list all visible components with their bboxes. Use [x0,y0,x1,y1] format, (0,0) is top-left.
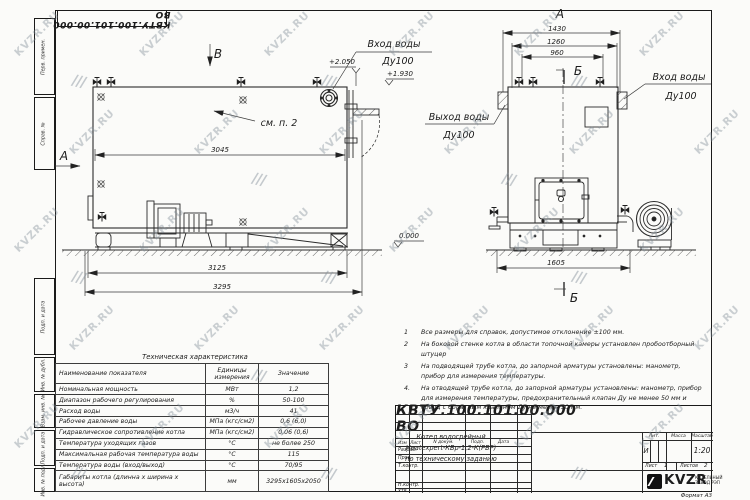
grid-line [396,422,531,423]
left-view [62,78,382,257]
grid-line [642,440,713,441]
spec-units: °С [206,460,259,471]
note-1: 1Все размеры для справок, допустимое отк… [404,328,706,337]
view-label-b: В [214,47,222,61]
spec-header-name: Наименование показателя [56,364,206,384]
spec-units: °С [206,438,259,449]
section-label-b-top: Б [574,64,582,78]
format-label: Формат А3 [614,493,712,499]
note-number: 3 [404,362,421,381]
mass-label: Масса [666,434,691,439]
col-podp: Подп. [465,440,490,445]
spec-name: Номинальная мощность [56,384,206,395]
row-utv: Утв. [398,489,408,494]
scale-value: 1:20 [691,446,713,455]
spec-units: мм [206,471,259,492]
note-text: На подводящей трубе котла, до запорной а… [421,362,706,381]
grid-line [396,454,531,455]
spec-name: Расход воды [56,406,206,417]
note-text: Все размеры для справок, допустимое откл… [421,328,624,337]
dim-1430: 1430 [548,25,566,33]
outlet-label: Выход воды [429,112,490,123]
lit-value: И [642,447,650,455]
spec-value: 0,06 (0,6) [259,427,329,438]
spec-units: МВт [206,384,259,395]
grid-line [396,470,531,471]
section-label-b-bottom: Б [570,291,578,305]
section-label-a: А [59,149,68,163]
spec-row: Гидравлическое сопротивление котлаМПа (к… [56,427,329,438]
grid-line [650,440,651,462]
grid-line [465,406,466,493]
right-view-dimensions [394,30,711,296]
see-note-label: см. п. 2 [261,118,298,129]
spec-row: Рабочее давление водыМПа (кгс/см2)0,6 (6… [56,417,329,428]
grid-line [490,406,491,493]
spec-header-row: Наименование показателя Единицы измерени… [56,364,329,384]
grid-line [396,414,531,415]
spec-header-units: Единицы измерения [206,364,259,384]
spec-units: МПа (кгс/см2) [206,417,259,428]
elev-0000: 0.000 [399,232,420,240]
inlet-label-left-view: Вход воды [367,39,421,50]
drain-valve [489,208,508,230]
col-data: Дата [490,440,517,445]
burner-assembly [147,201,212,247]
spec-name: Гидравлическое сопротивление котла [56,427,206,438]
spec-table-title: Техническая характеристика [95,353,295,361]
row-tkontr: Т.контр. [398,464,419,469]
grid-line [396,488,531,489]
inlet-dn-left-view: Ду100 [381,56,413,67]
spec-row: Номинальная мощностьМВт1,2 [56,384,329,395]
sheets-value: 2 [704,463,708,469]
elev-2050: +2.050 [329,58,355,66]
spec-row: Диапазон рабочего регулирования%50-100 [56,395,329,406]
col-ndokum: N докум. [422,440,465,445]
col-list: Лист [409,440,422,445]
grid-line [517,406,518,493]
spec-row: Температура уходящих газов°Сне более 250 [56,438,329,449]
dim-3125: 3125 [208,264,226,272]
spec-units: МПа (кгс/см2) [206,427,259,438]
skid [95,233,348,250]
fan-assembly [617,202,672,251]
boiler-base [510,223,617,251]
title-block: КВТУ.100.101.00.000 ВО Изм Лист N докум.… [395,405,712,492]
doc-number: КВТУ.100.101.00.000 ВО [396,406,578,432]
note-2: 2На боковой стенке котла в области топоч… [404,340,706,359]
spec-value: не более 250 [259,438,329,449]
spec-row: Температура воды (вход/выход)°С70/95 [56,460,329,471]
inlet-label-right-view: Вход воды [652,72,706,83]
elev-1930: +1.930 [387,70,413,78]
lit-label: Лит. [642,434,666,439]
spec-value: 115 [259,449,329,460]
grid-line [531,406,532,493]
sheet-label: Лист [645,464,657,469]
grid-line [658,440,659,462]
note-text: На боковой стенке котла в области топочн… [421,340,706,359]
note-3: 3На подводящей трубе котла, до запорной … [404,362,706,381]
spec-row: Габариты котла (длинна х ширина х высота… [56,471,329,492]
spec-value: 0,6 (6,0) [259,417,329,428]
grid-line [676,462,677,470]
spec-value: 3295х1605х2050 [259,471,329,492]
kvzr-logo-icon [647,474,662,489]
note-number: 1 [404,328,421,337]
spec-name: Максимальная рабочая температура воды [56,449,206,460]
drawing-sheet: { "sheet": { "doc_number": "КВТУ.100.101… [0,0,750,500]
row-nkontr: Н.контр. [398,483,419,488]
dim-3295: 3295 [213,283,231,291]
dim-1605: 1605 [547,259,565,267]
inlet-dn-right-view: Ду100 [664,91,696,102]
spec-value: 1,2 [259,384,329,395]
spec-value: 41 [259,406,329,417]
spec-table: Наименование показателя Единицы измерени… [55,363,329,492]
dim-1260: 1260 [547,38,565,46]
scale-label: Масштаб [691,434,713,439]
spec-name: Температура воды (вход/выход) [56,460,206,471]
spec-units: % [206,395,259,406]
sheet-value: 1 [664,463,668,469]
grid-line [531,470,713,471]
spec-row: Расход водым3/ч41 [56,406,329,417]
water-inlet-flange [321,90,338,107]
row-prov: Пров. [398,456,412,461]
grid-line [396,430,531,431]
company-name-line: ЗАВОД РЭП [695,480,722,485]
spec-units: °С [206,449,259,460]
sheets-label: Листов [680,464,698,469]
note-number: 2 [404,340,421,359]
spec-header-value: Значение [259,364,329,384]
spec-value: 70/95 [259,460,329,471]
dim-960: 960 [550,49,564,57]
spec-name: Габариты котла (длинна х ширина х высота… [56,471,206,492]
row-razrab: Разраб. [398,448,417,453]
spec-name: Температура уходящих газов [56,438,206,449]
grid-line [422,406,423,493]
spec-name: Рабочее давление воды [56,417,206,428]
dim-3045: 3045 [211,146,229,154]
spec-row: Максимальная рабочая температура воды°С1… [56,449,329,460]
company-name: КОТЕЛЬНЫЙ ЗАВОД РЭП [695,475,722,485]
spec-units: м3/ч [206,406,259,417]
outlet-dn: Ду100 [442,130,474,141]
spec-value: 50-100 [259,395,329,406]
view-label-a: А [555,7,564,21]
spec-name: Диапазон рабочего регулирования [56,395,206,406]
furnace-door [535,178,589,223]
col-izm: Изм [396,440,409,445]
